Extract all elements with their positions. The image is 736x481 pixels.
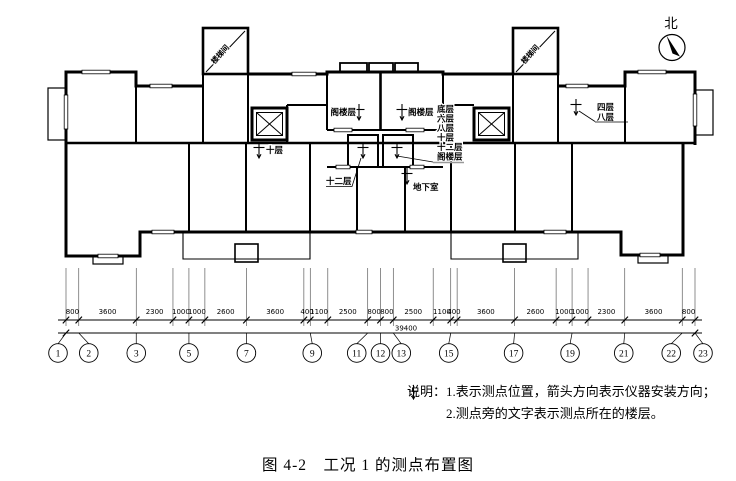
dimension-value: 800 — [66, 308, 79, 316]
axis-leader — [357, 333, 368, 344]
stack-item: 阁楼层 — [437, 152, 463, 162]
axis-number: 9 — [310, 349, 315, 359]
dimension-value: 2500 — [404, 308, 422, 316]
dimension-value: 3600 — [266, 308, 284, 316]
dimension-value: 1100 — [310, 308, 328, 316]
axis-number: 19 — [565, 349, 575, 359]
building-walls — [66, 28, 695, 256]
note-1-text: 表示测点位置，箭头方向表示仪器安装方向； — [456, 384, 716, 399]
dimension-value: 3600 — [645, 308, 663, 316]
measure-point-icon — [254, 142, 265, 158]
axis-number: 5 — [187, 349, 192, 359]
floor-label-attic-left: 阁楼层 — [330, 107, 356, 117]
elevator-right — [474, 108, 509, 140]
core-room-right — [383, 135, 413, 167]
floor-label-basement: 地下室 — [413, 182, 439, 192]
axis-leader — [570, 333, 572, 344]
dimension-value: 2300 — [146, 308, 164, 316]
bay-window-right — [695, 90, 713, 135]
stack-item: 十层 — [437, 133, 455, 143]
balcony-left — [183, 232, 310, 259]
plan-drawing: 楼梯间 楼梯间 十层 阁楼层 阁楼层 十二层 地下室 底层 六层 八层 十层 — [0, 0, 736, 376]
axis-number: 23 — [698, 349, 708, 359]
dimension-value: 1000 — [571, 308, 589, 316]
axis-leader — [58, 333, 66, 344]
balcony-right — [451, 232, 578, 259]
dimension-value: 2600 — [526, 308, 544, 316]
dimension-value: 3600 — [99, 308, 117, 316]
axis-leader — [514, 333, 515, 344]
measure-point-icon — [392, 142, 403, 158]
axis-leader — [671, 333, 682, 344]
dimension-value: 2300 — [597, 308, 615, 316]
axis-number: 7 — [244, 349, 249, 359]
axis-leader — [624, 333, 625, 344]
north-label: 北 — [664, 16, 678, 31]
measure-point-icon — [408, 384, 419, 400]
stack-item: 八层 — [436, 123, 455, 133]
axis-number: 22 — [666, 349, 676, 359]
staircase-left-label: 楼梯间 — [209, 42, 231, 65]
floor-label-twelve: 十二层 — [326, 176, 352, 186]
north-needle — [667, 36, 681, 57]
axis-number: 3 — [134, 349, 139, 359]
inner-walls-lower — [189, 143, 572, 232]
axis-number: 17 — [509, 349, 519, 359]
measure-point-icon — [571, 99, 582, 115]
figure-caption: 图 4-2 工况 1 的测点布置图 — [0, 453, 736, 475]
dimension-value: 400 — [447, 308, 460, 316]
stack-item: 八层 — [596, 112, 615, 122]
axis-number: 15 — [444, 349, 454, 359]
axis-leader — [310, 333, 312, 344]
axis-leader — [695, 333, 703, 344]
outer-wall-bottom — [66, 143, 683, 256]
axis-number: 21 — [619, 349, 629, 359]
legend-notes: 说明：1.表示测点位置，箭头方向表示仪器安装方向； 2.测点旁的文字表示测点所在… — [407, 384, 727, 422]
stack-item: 底层 — [437, 104, 455, 114]
dimension-layer: 8003600230010001000260036004001100250080… — [49, 268, 713, 362]
dimension-value: 1000 — [188, 308, 206, 316]
point-labels: 十层 阁楼层 阁楼层 十二层 地下室 底层 六层 八层 十层 十二层 阁楼层 四… — [266, 102, 628, 192]
figure-page: 楼梯间 楼梯间 十层 阁楼层 阁楼层 十二层 地下室 底层 六层 八层 十层 — [0, 0, 736, 481]
axis-number: 13 — [397, 349, 407, 359]
dimension-value: 800 — [682, 308, 695, 316]
axis-leader — [79, 333, 89, 344]
measure-point-icon — [402, 168, 413, 184]
note-1-number: 1. — [446, 384, 456, 399]
staircase-right-label: 楼梯间 — [519, 42, 541, 65]
note-2-text: 2.测点旁的文字表示测点所在的楼层。 — [446, 406, 664, 421]
floor-stack-right: 四层 八层 — [579, 102, 628, 122]
note-line-2: 2.测点旁的文字表示测点所在的楼层。 — [446, 406, 727, 422]
dimension-value: 2500 — [339, 308, 357, 316]
measure-point-icon — [397, 104, 408, 120]
north-arrow: 北 — [659, 16, 685, 61]
axis-leader — [449, 333, 451, 344]
bay-window-left — [48, 88, 66, 140]
note-line-1: 说明：1.表示测点位置，箭头方向表示仪器安装方向； — [407, 384, 727, 400]
axis-number: 12 — [376, 349, 386, 359]
measure-point-icon — [358, 142, 369, 158]
stack-item: 十二层 — [437, 142, 463, 152]
stack-item: 六层 — [437, 114, 455, 124]
dimension-value: 3600 — [477, 308, 495, 316]
axis-number: 1 — [56, 349, 61, 359]
overall-dimension-value: 39400 — [395, 325, 417, 333]
elevator-left — [252, 108, 287, 140]
axis-leader — [393, 333, 401, 344]
dimension-value: 800 — [367, 308, 380, 316]
leader-stack-left — [397, 156, 433, 162]
axis-number: 11 — [352, 349, 361, 359]
dimension-value: 2600 — [217, 308, 235, 316]
floor-label-ten: 十层 — [266, 145, 284, 155]
dimension-value: 800 — [380, 308, 393, 316]
leader-stack-right — [579, 111, 595, 122]
stack-item: 四层 — [597, 102, 615, 112]
axis-number: 2 — [86, 349, 91, 359]
floor-label-attic-right: 阁楼层 — [408, 107, 434, 117]
